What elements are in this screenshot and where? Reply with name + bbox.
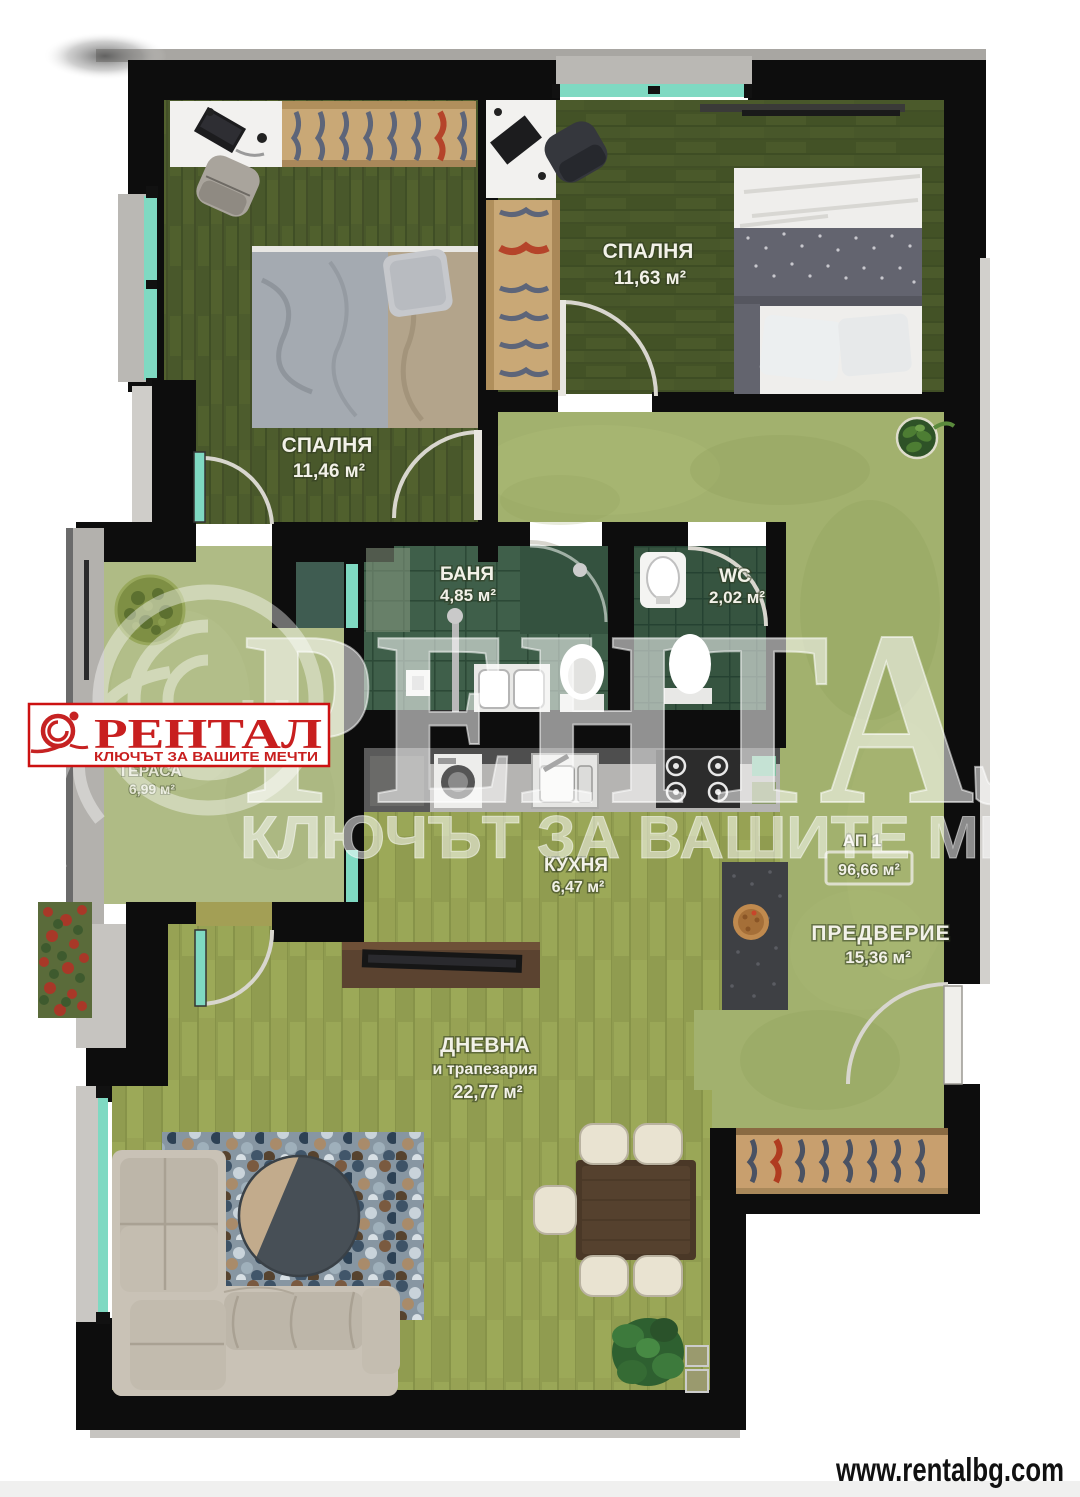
svg-text:11,63 м²: 11,63 м²: [614, 268, 686, 289]
svg-text:15,36 м²: 15,36 м²: [845, 948, 911, 967]
svg-text:11,46 м²: 11,46 м²: [293, 461, 365, 482]
svg-text:СПАЛНЯ: СПАЛНЯ: [282, 434, 373, 457]
svg-text:КЛЮЧЪТ ЗА ВАШИТЕ МЕЧТИ: КЛЮЧЪТ ЗА ВАШИТЕ МЕЧТИ: [94, 749, 318, 764]
svg-text:6,47 м²: 6,47 м²: [552, 879, 605, 896]
svg-text:СПАЛНЯ: СПАЛНЯ: [603, 240, 694, 263]
svg-text:ПРЕДВЕРИЕ: ПРЕДВЕРИЕ: [811, 922, 950, 945]
svg-text:22,77 м²: 22,77 м²: [453, 1082, 522, 1102]
svg-text:ДНЕВНА: ДНЕВНА: [440, 1034, 530, 1057]
svg-text:www.rentalbg.com: www.rentalbg.com: [835, 1451, 1064, 1488]
svg-text:КЛЮЧЪТ ЗА ВАШИТЕ МЕЧТИ: КЛЮЧЪТ ЗА ВАШИТЕ МЕЧТИ: [240, 804, 1080, 871]
svg-text:и трапезария: и трапезария: [433, 1061, 538, 1078]
